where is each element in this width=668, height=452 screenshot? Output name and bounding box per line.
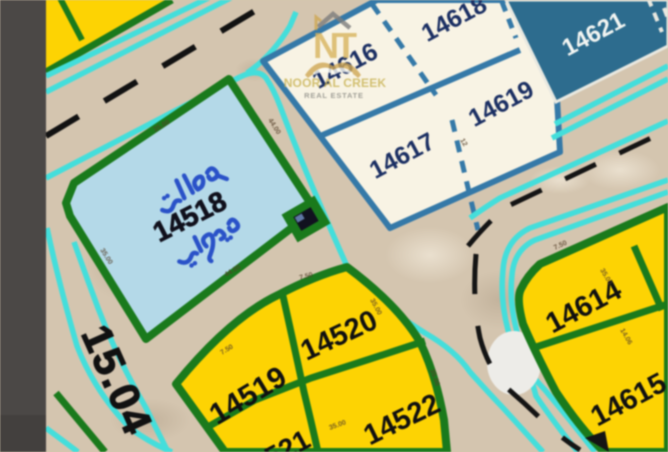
svg-text:NT: NT [313,25,357,66]
svg-text:NOOR AL CREEK: NOOR AL CREEK [284,76,387,90]
svg-text:REAL ESTATE: REAL ESTATE [304,91,364,100]
